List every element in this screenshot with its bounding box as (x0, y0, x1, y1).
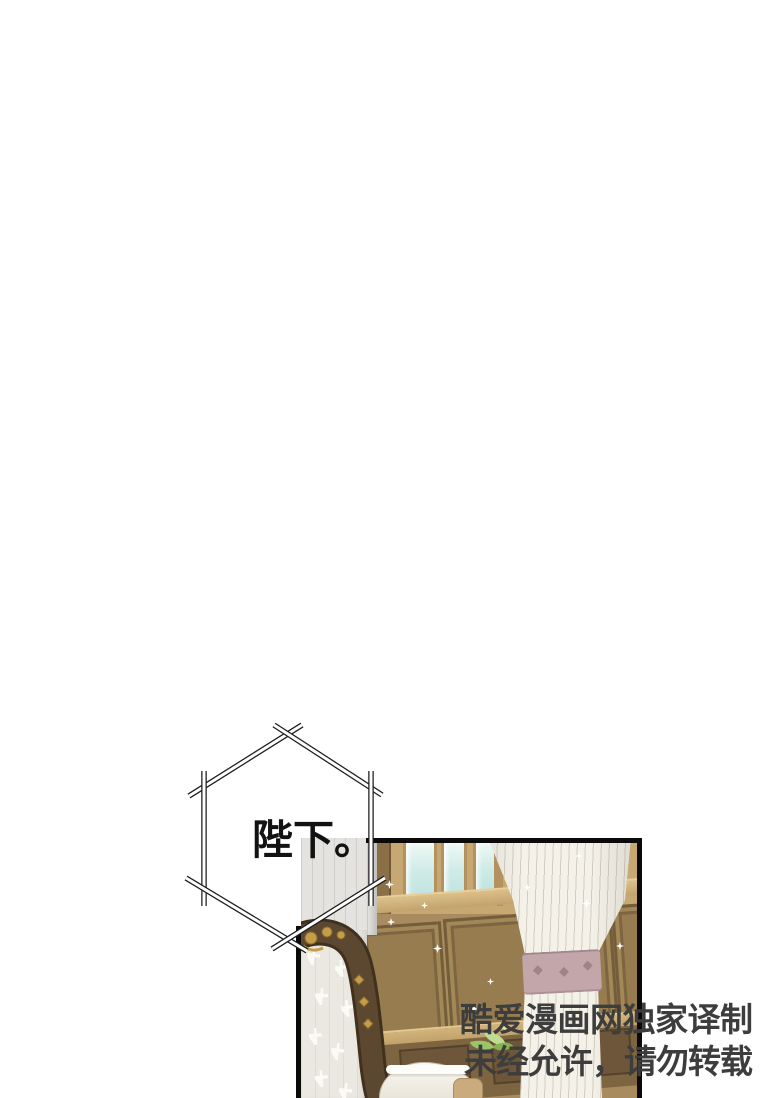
panel-border-left (296, 926, 301, 1098)
tie-motif-icon (559, 967, 570, 978)
comic-page: 陛下。 酷爱漫画网独家译制 未经允许，请勿转载 (0, 0, 760, 1098)
cloth-roll (386, 1065, 470, 1074)
panel-border-top (366, 838, 642, 843)
curtain-tie (522, 949, 602, 995)
watermark-line-1: 酷爱漫画网独家译制 (460, 1001, 753, 1039)
tie-motif-icon (533, 965, 544, 976)
tie-motif-icon (582, 960, 593, 971)
speech-bubble-text: 陛下。 (252, 806, 375, 866)
chair-seat (453, 1078, 483, 1098)
watermark-line-2: 未经允许，请勿转载 (464, 1043, 752, 1081)
